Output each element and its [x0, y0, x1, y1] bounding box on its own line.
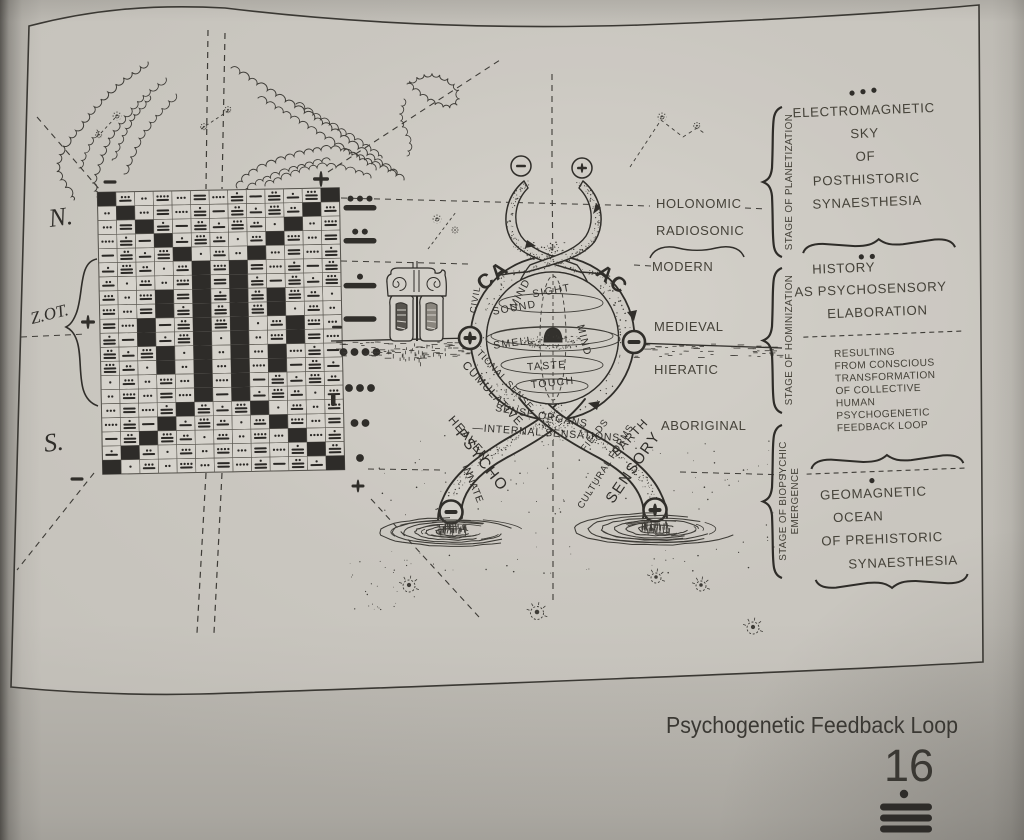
svg-text:HOLONOMIC: HOLONOMIC [656, 196, 742, 211]
svg-text:STAGE OF HOMINIZATION: STAGE OF HOMINIZATION [784, 275, 795, 406]
svg-text:HIERATIC: HIERATIC [654, 362, 719, 377]
svg-text:OCEAN: OCEAN [833, 508, 884, 525]
svg-text:HUMAN: HUMAN [836, 397, 876, 410]
svg-text:STAGE OF PLANETIZATION: STAGE OF PLANETIZATION [784, 114, 795, 250]
svg-text:ABORIGINAL: ABORIGINAL [661, 418, 746, 433]
svg-text:SKY: SKY [850, 125, 879, 141]
svg-text:MODERN: MODERN [652, 259, 713, 274]
svg-text:MEDIEVAL: MEDIEVAL [654, 319, 724, 334]
svg-text:S.: S. [42, 427, 65, 458]
svg-text:EMERGENCE: EMERGENCE [790, 468, 801, 535]
svg-text:16: 16 [884, 740, 934, 791]
svg-text:RADIOSONIC: RADIOSONIC [656, 223, 744, 238]
svg-text:OF: OF [855, 148, 875, 164]
svg-text:RESULTING: RESULTING [834, 347, 896, 360]
svg-text:Psychogenetic Feedback Loop: Psychogenetic Feedback Loop [666, 712, 958, 738]
svg-text:HISTORY: HISTORY [812, 259, 876, 276]
svg-text:N.: N. [46, 201, 75, 233]
svg-text:STAGE OF BIOPSYCHIC: STAGE OF BIOPSYCHIC [778, 441, 789, 561]
